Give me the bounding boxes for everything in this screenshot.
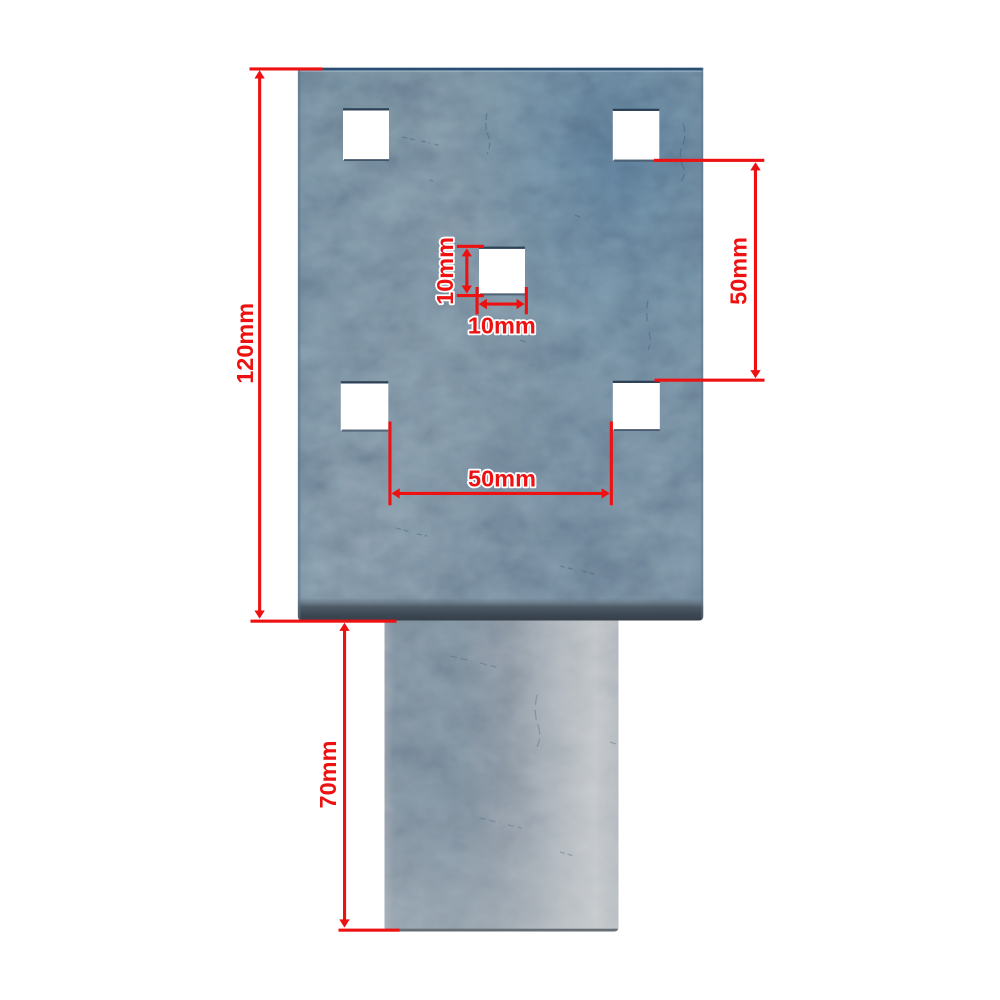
svg-text:50mm: 50mm: [726, 237, 752, 305]
svg-text:10mm: 10mm: [468, 313, 536, 339]
svg-text:10mm: 10mm: [432, 237, 458, 305]
svg-text:120mm: 120mm: [232, 303, 258, 384]
svg-text:70mm: 70mm: [315, 741, 341, 809]
svg-text:50mm: 50mm: [468, 466, 536, 492]
